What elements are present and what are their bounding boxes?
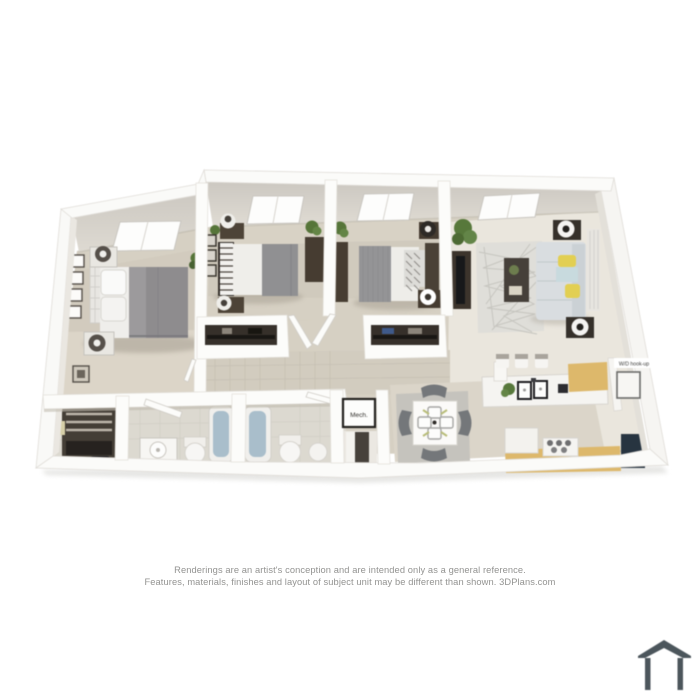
svg-text:W/D hook-up: W/D hook-up — [619, 362, 649, 368]
svg-text:Mech.: Mech. — [350, 412, 368, 419]
